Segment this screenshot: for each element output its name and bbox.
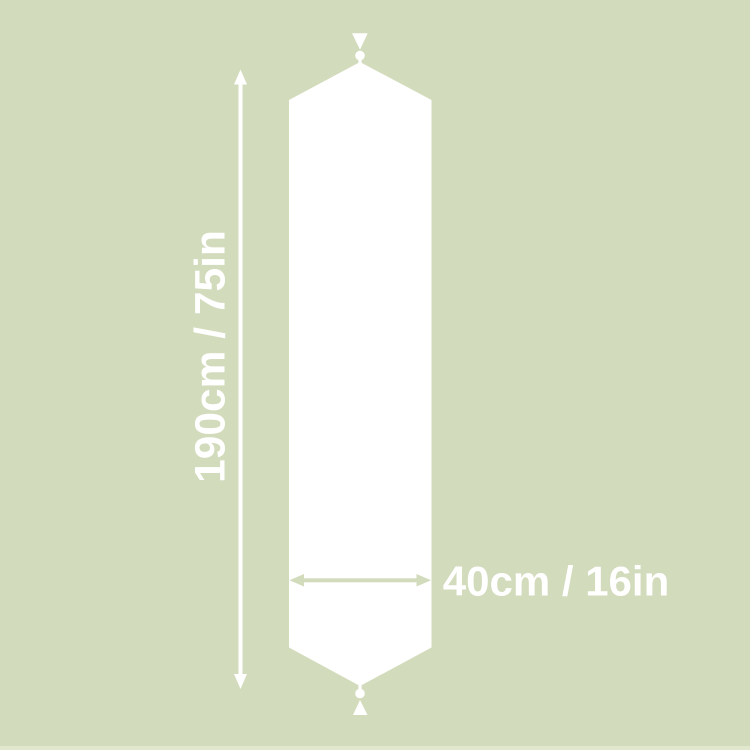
svg-text:190cm / 75in: 190cm / 75in: [188, 230, 235, 483]
svg-text:40cm / 16in: 40cm / 16in: [443, 558, 669, 605]
